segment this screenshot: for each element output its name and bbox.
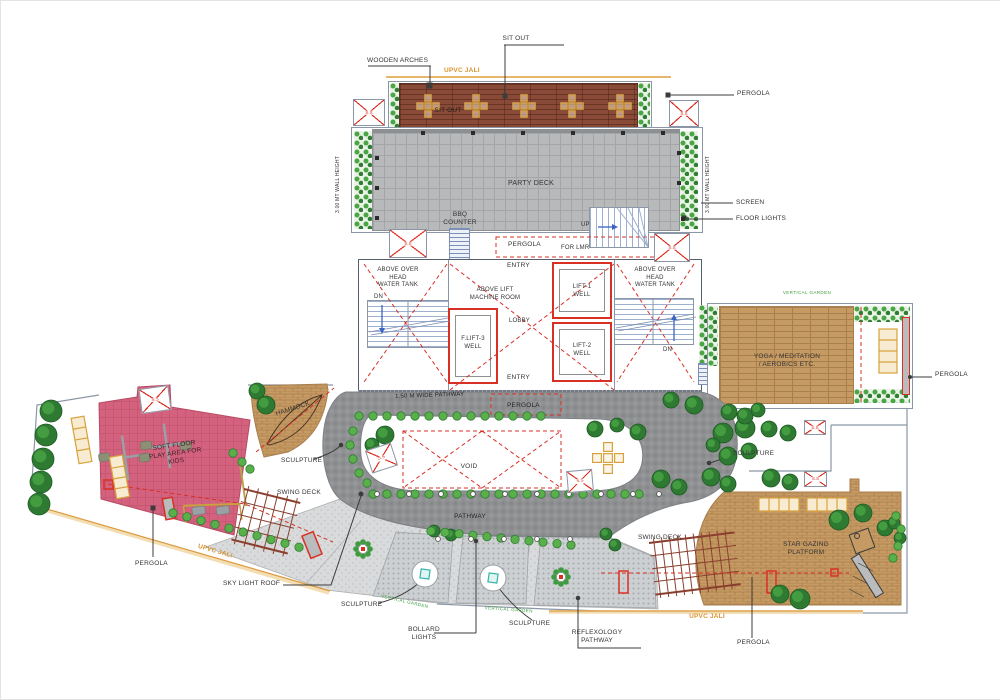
shrub-icon	[481, 412, 489, 420]
shrub-icon	[411, 490, 419, 498]
pergola-callout-bottom-right: PERGOLA	[737, 639, 779, 647]
shrub-icon	[892, 512, 900, 520]
ss-marker-label: S.S	[679, 111, 688, 116]
shrub-icon	[539, 538, 547, 546]
ss-marker: S.S	[353, 99, 385, 126]
tree-icon	[782, 474, 798, 490]
hammock-label: HAMMOCK	[269, 398, 317, 421]
pergola-callout-top-right: PERGOLA	[737, 90, 779, 98]
shrub-icon	[246, 465, 254, 473]
shrub-icon	[355, 469, 363, 477]
fire-lift3-label: F.LIFT-3 WELL	[450, 336, 496, 351]
shrub-icon	[369, 412, 377, 420]
bollard-light-icon	[535, 492, 540, 497]
shrub-icon	[363, 479, 371, 487]
paving-apron	[206, 499, 658, 609]
bollard-light-icon	[436, 537, 441, 542]
sky-light-roof-callout: SKY LIGHT ROOF	[223, 580, 287, 588]
shrub-icon	[439, 412, 447, 420]
tree-icon	[771, 585, 789, 603]
floor-light-icon	[521, 131, 525, 135]
sculpture-icon	[488, 573, 498, 583]
lobby-label: LOBBY	[509, 318, 545, 326]
pergola-callout-bottom-left: PERGOLA	[135, 560, 177, 568]
flower-ring-icon	[355, 541, 361, 547]
ss-marker: S.S	[566, 469, 594, 493]
reflexology-pathway-panel	[534, 537, 656, 608]
entry-label-bottom: ENTRY	[507, 374, 543, 382]
table-set-icon	[604, 443, 613, 452]
floor-light-icon	[621, 131, 625, 135]
entry-label-top: ENTRY	[507, 262, 543, 270]
shrub-icon	[439, 490, 447, 498]
floor-light-icon	[375, 156, 379, 160]
flower-ring-icon	[360, 553, 366, 559]
shrub-icon	[553, 539, 561, 547]
pergola-label-mid: PERGOLA	[508, 241, 550, 249]
shrub-icon	[453, 490, 461, 498]
shrub-icon	[197, 516, 205, 524]
stairwell-left	[367, 300, 449, 348]
flower-ring-icon	[558, 567, 564, 573]
flower-ring-icon	[563, 569, 569, 575]
shrub-icon	[523, 412, 531, 420]
upvc-jali-label-top: UPVC JALI	[444, 67, 490, 75]
play-equipment-icons	[95, 414, 247, 538]
shrub-icon	[495, 490, 503, 498]
lift2-label: LIFT-2 WELL	[562, 343, 602, 358]
flower-ring-icon	[551, 574, 557, 580]
party-deck-label: PARTY DECK	[499, 180, 563, 189]
shrub-icon	[894, 542, 902, 550]
tree-icon	[652, 470, 670, 488]
shrub-icon	[229, 449, 237, 457]
flower-ring-icon	[365, 551, 371, 557]
shrub-icon	[397, 412, 405, 420]
shrub-icon	[593, 490, 601, 498]
dn-label-right: DN	[663, 347, 679, 355]
ss-marker: S.S	[389, 229, 427, 258]
sculpture-callout-left: SCULPTURE	[281, 457, 329, 465]
screen-callout: SCREEN	[736, 199, 776, 207]
bollard-light-icon	[471, 492, 476, 497]
upvc-jali-label-left: UPVC JALI	[197, 543, 245, 564]
flower-ring-icon	[565, 574, 571, 580]
ss-marker: S.S	[804, 471, 827, 487]
ss-marker-label: S.S	[575, 478, 585, 483]
tree-icon	[445, 529, 457, 541]
shrub-icon	[495, 412, 503, 420]
tree-icon	[40, 400, 62, 422]
tree-icon	[630, 424, 646, 440]
flower-ring-icon	[355, 551, 361, 557]
ss-marker: S.S	[654, 233, 690, 262]
sculpture-marker	[361, 547, 365, 551]
ss-marker: S.S	[138, 385, 171, 414]
bollard-light-icon	[535, 537, 540, 542]
planter-strip	[638, 83, 650, 129]
tree-icon	[877, 520, 893, 536]
shrub-icon	[211, 520, 219, 528]
tree-icon	[706, 438, 720, 452]
tree-icon	[685, 396, 703, 414]
shrub-icon	[621, 490, 629, 498]
bollard-light-icon	[657, 492, 662, 497]
tree-icon	[854, 504, 872, 522]
sculpture-callout-bottom-left: SCULPTURE	[341, 601, 389, 609]
soft-floor-label: SOFT FLOOR PLAY AREA FOR KIDS	[139, 437, 212, 471]
tree-icon	[609, 539, 621, 551]
shrub-icon	[897, 525, 905, 533]
shrub-icon	[349, 455, 357, 463]
tree-icon	[713, 423, 733, 443]
stairwell-right	[614, 298, 694, 345]
tree-icon	[894, 532, 906, 544]
shrub-icon	[509, 490, 517, 498]
tree-icon	[762, 469, 780, 487]
ss-marker-label: S.S	[810, 425, 819, 430]
pathway-label: PATHWAY	[449, 513, 491, 521]
shrub-icon	[239, 528, 247, 536]
floor-lights-callout: FLOOR LIGHTS	[736, 215, 788, 223]
tree-icon	[28, 493, 50, 515]
flower-ring-icon	[563, 579, 569, 585]
tree-icon	[35, 424, 57, 446]
flower-ring-center	[359, 545, 368, 554]
shrub-icon	[607, 490, 615, 498]
shrub-icon	[355, 412, 363, 420]
shrub-icon	[551, 490, 559, 498]
vertical-garden-label: VERTICAL GARDEN	[771, 290, 843, 296]
tree-icon	[888, 517, 900, 529]
shrub-icon	[467, 412, 475, 420]
pergola-callout-yoga: PERGOLA	[935, 371, 977, 379]
shrub-icon	[525, 537, 533, 545]
table-set-icon	[604, 465, 613, 474]
bollard-light-icon	[469, 537, 474, 542]
shrub-icon	[397, 490, 405, 498]
terrace-plan-stage: SIT OUT WOODEN ARCHES UPVC JALI PERGOLA …	[0, 0, 1000, 700]
shrub-icon	[497, 534, 505, 542]
shrub-icon	[427, 527, 435, 535]
tree-icon	[610, 418, 624, 432]
shrub-icon	[238, 458, 246, 466]
shrub-icon	[425, 490, 433, 498]
floor-light-icon	[677, 151, 681, 155]
shrub-icon	[455, 530, 463, 538]
tree-icon	[702, 468, 720, 486]
shrub-icon	[225, 524, 233, 532]
shrub-icon	[441, 528, 449, 536]
table-set-icon	[593, 454, 602, 463]
wall-height-right: 3.00 MT WALL HEIGHT	[705, 149, 711, 213]
ss-marker-label: S.S	[150, 397, 160, 403]
shrub-icon	[383, 490, 391, 498]
tree-icon	[32, 448, 54, 470]
pergola-posts	[104, 480, 838, 593]
shrub-icon	[411, 412, 419, 420]
ss-marker: S.S	[365, 442, 398, 473]
tree-icon	[737, 408, 753, 424]
overhead-tank-left: ABOVE OVER HEAD WATER TANK	[369, 267, 427, 290]
tree-icon	[600, 528, 612, 540]
tree-icon	[30, 471, 52, 493]
shrub-icon	[281, 539, 289, 547]
ss-marker-label: S.S	[667, 245, 676, 250]
floor-light-icon	[677, 181, 681, 185]
up-label: UP	[581, 222, 599, 230]
shrub-icon	[509, 412, 517, 420]
floor-light-icon	[681, 217, 685, 221]
shrub-icon	[295, 543, 303, 551]
ss-marker-label: S.S	[364, 110, 373, 115]
star-gazing-label: STAR GAZING PLATFORM	[769, 541, 843, 557]
table-set-icon	[604, 454, 613, 463]
paving-joints	[306, 521, 576, 606]
bbq-counter-label: BBQ COUNTER	[434, 211, 486, 227]
shrub-icon	[481, 490, 489, 498]
overhead-tank-right: ABOVE OVER HEAD WATER TANK	[627, 267, 683, 290]
upvc-jali-label-bottom: UPVC JALI	[683, 613, 731, 621]
flower-ring-icon	[365, 541, 371, 547]
sitout-wood-deck	[399, 83, 638, 129]
shrub-icon	[267, 535, 275, 543]
tree-icon	[790, 589, 810, 609]
bbq-counter-icon	[449, 228, 470, 260]
wall	[614, 260, 615, 391]
ss-marker-label: S.S	[403, 241, 412, 246]
flower-ring-icon	[553, 579, 559, 585]
ss-marker-label: S.S	[376, 454, 386, 461]
bollard-lights-callout: BOLLARD LIGHTS	[397, 626, 451, 642]
shrub-icon	[349, 427, 357, 435]
void-label: VOID	[453, 463, 485, 471]
sit-out-deck-label: SIT OUT	[427, 107, 469, 115]
ss-marker: S.S	[669, 100, 699, 127]
telescope-icon	[849, 528, 883, 597]
flower-ring-center	[557, 573, 566, 582]
shrub-icon	[183, 513, 191, 521]
floor-light-icon	[571, 131, 575, 135]
shrub-icon	[169, 509, 177, 517]
lift1-label: LIFT-1 WELL	[562, 284, 602, 299]
planter-strip	[708, 306, 718, 366]
shrub-icon	[537, 490, 545, 498]
shrub-icon	[469, 531, 477, 539]
flower-ring-icon	[353, 546, 359, 552]
tree-icon	[720, 476, 736, 492]
shrub-icon	[453, 412, 461, 420]
bollard-light-icon	[407, 492, 412, 497]
bollard-light-icon	[375, 492, 380, 497]
shrub-icon	[483, 532, 491, 540]
pathway-wide-label: 1.50 M WIDE PATHWAY	[395, 391, 477, 401]
bollard-light-icon	[631, 492, 636, 497]
tree-icon	[376, 426, 394, 444]
floor-light-icon	[421, 131, 425, 135]
sky-light-circle	[480, 565, 506, 591]
hammock-deck	[251, 384, 328, 457]
sky-light-roof-panel	[373, 532, 453, 603]
sculpture-marker	[559, 575, 563, 579]
ss-marker: S.S	[804, 420, 826, 435]
floor-light-icon	[471, 131, 475, 135]
tree-icon	[735, 418, 755, 438]
lift-machine-room-label: ABOVE LIFT MACHINE ROOM	[467, 287, 523, 302]
table-set-icon	[615, 454, 624, 463]
flower-ring-icon	[553, 569, 559, 575]
tree-icon	[671, 479, 687, 495]
bollard-light-icon	[503, 492, 508, 497]
bollard-light-icon	[439, 492, 444, 497]
reflexology-callout: REFLEXOLOGY PATHWAY	[564, 629, 630, 645]
flower-ring-icon	[558, 581, 564, 587]
sculpture-callout-right: SCULPTURE	[733, 450, 781, 458]
tree-icon	[428, 525, 440, 537]
vertical-green-screen	[680, 131, 698, 229]
floor-light-icon	[661, 131, 665, 135]
sculpture-callout-bottom-mid: SCULPTURE	[509, 620, 557, 628]
shrub-icon	[523, 490, 531, 498]
yoga-label: YOGA / MEDITATION / AEROBICS ETC.	[741, 353, 833, 369]
tree-icon	[780, 425, 796, 441]
shrub-icon	[346, 441, 354, 449]
shrub-icon	[467, 490, 475, 498]
bollard-light-icon	[502, 537, 507, 542]
vertical-green-screen	[354, 131, 372, 229]
sculpture-icon	[420, 569, 430, 579]
shrub-icon	[425, 412, 433, 420]
flower-ring-icon	[367, 546, 373, 552]
shrub-icon	[567, 541, 575, 549]
ss-marker-label: S.S	[811, 477, 820, 482]
shrub-icon	[369, 490, 377, 498]
tree-icon	[587, 421, 603, 437]
wall-height-left: 3.00 MT WALL HEIGHT	[335, 149, 341, 213]
floor-light-icon	[375, 186, 379, 190]
shrub-icon	[253, 532, 261, 540]
planter-strip	[390, 83, 399, 129]
sky-light-circle	[412, 561, 438, 587]
pergola-label-void: PERGOLA	[507, 402, 549, 410]
shrub-icon	[635, 490, 643, 498]
shrub-icon	[537, 412, 545, 420]
bollard-light-icon	[568, 537, 573, 542]
shrub-icon	[889, 554, 897, 562]
pergola-bar	[902, 317, 910, 395]
sit-out-callout: SIT OUT	[496, 35, 536, 43]
shrub-icon	[383, 412, 391, 420]
tree-icon	[249, 383, 265, 399]
flower-ring-icon	[360, 539, 366, 545]
sky-light-roof-panel	[456, 536, 529, 604]
dn-label-left: DN	[374, 294, 390, 302]
tree-icon	[761, 421, 777, 437]
garden-boundary	[32, 385, 907, 613]
bollard-light-icon	[599, 492, 604, 497]
wooden-arches-callout: WOODEN ARCHES	[367, 57, 447, 65]
vertical-garden-label-small: VERTICAL GARDEN	[483, 605, 535, 614]
for-lmr-label: FOR LMR	[561, 245, 599, 253]
swing-deck-label-left: SWING DECK	[277, 489, 323, 497]
floor-light-icon	[375, 216, 379, 220]
shrub-icon	[511, 535, 519, 543]
tree-icon	[829, 510, 849, 530]
swing-deck-label-right: SWING DECK	[638, 534, 684, 542]
